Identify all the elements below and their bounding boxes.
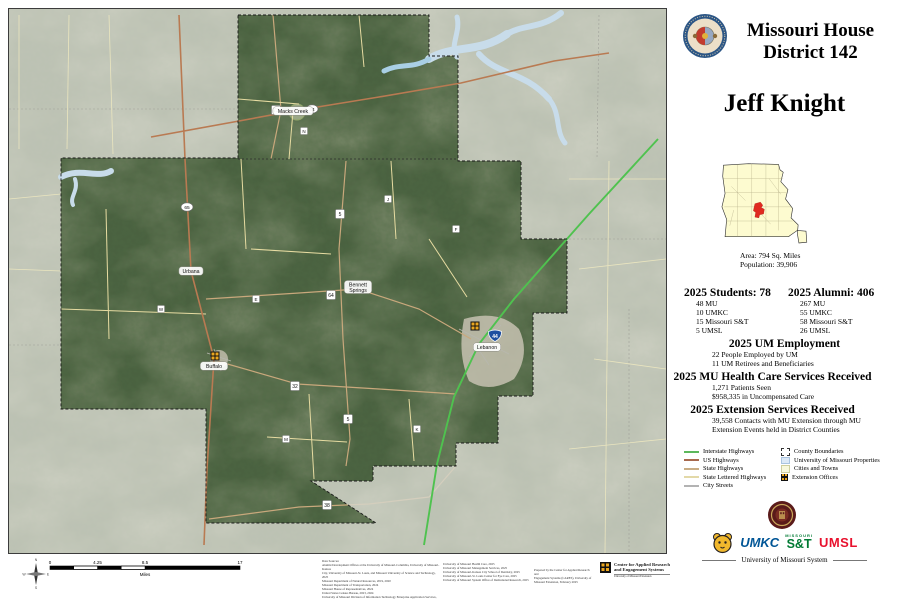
legend-label: Interstate Highways <box>703 448 754 455</box>
svg-text:N: N <box>302 129 305 134</box>
svg-text:Urbana: Urbana <box>182 269 199 275</box>
page-title-line1: Missouri House <box>728 20 893 42</box>
um-system-label-row: University of Missouri System <box>672 556 897 564</box>
lettered-shield: W <box>158 306 165 313</box>
employment-item: 11 UM Retirees and Beneficiaries <box>712 360 897 368</box>
missouri-st-monogram: S&T <box>785 538 813 551</box>
state-shield: 64 <box>327 291 336 300</box>
cares-logo-icon <box>600 562 611 573</box>
lettered-shield: E <box>253 296 260 303</box>
um-properties-swatch <box>781 457 790 465</box>
university-logos-row: UMKC MISSOURI S&T UMSL <box>672 531 897 554</box>
students-stats: 2025 Students: 78 48 MU 10 UMKC 15 Misso… <box>684 287 771 337</box>
representative-name: Jeff Knight <box>672 90 897 118</box>
healthcare-stats: 2025 MU Health Care Services Received 1,… <box>660 371 885 402</box>
scale-bar: 0 4.25 8.5 17 Miles <box>48 558 248 582</box>
cares-block: Center for Applied Research and Engageme… <box>600 562 670 578</box>
alumni-items: 267 MU 55 UMKC 58 Missouri S&T 26 UMSL <box>800 300 874 335</box>
legend-label: University of Missouri Properties <box>794 457 880 464</box>
extension-stats: 2025 Extension Services Received 39,558 … <box>660 404 885 435</box>
extension-office-icon <box>211 352 220 361</box>
svg-text:E: E <box>254 297 257 302</box>
umkc-logo: UMKC <box>740 535 779 550</box>
city-label: BennettSprings <box>344 281 371 294</box>
svg-text:64: 64 <box>328 293 334 299</box>
interstate-line-swatch <box>684 451 699 453</box>
cities-towns-swatch <box>781 465 790 473</box>
healthcare-item: $958,335 in Uncompensated Care <box>712 393 885 401</box>
students-heading: 2025 Students: 78 <box>684 287 771 299</box>
city-label: Macks Creek <box>273 107 313 116</box>
credit-line: Alumni Development Offices at the Univer… <box>322 563 440 571</box>
alumni-stats: 2025 Alumni: 406 267 MU 55 UMKC 58 Misso… <box>788 287 874 337</box>
svg-text:4.25: 4.25 <box>93 560 102 565</box>
inset-caption: Area: 794 Sq. Miles Population: 39,906 <box>740 251 800 270</box>
page-title: Missouri House District 142 <box>728 20 893 65</box>
um-system-label: University of Missouri System <box>741 556 827 564</box>
svg-text:17: 17 <box>237 560 243 565</box>
svg-text:Buffalo: Buffalo <box>206 364 222 370</box>
alumni-item: 267 MU <box>800 300 874 308</box>
credit-line: Missouri Extension, February 2025 <box>534 580 594 584</box>
cares-line: and Engagement Systems <box>614 567 670 572</box>
svg-text:Miles: Miles <box>140 572 151 577</box>
extension-heading: 2025 Extension Services Received <box>660 404 885 416</box>
legend-label: US Highways <box>703 457 739 464</box>
healthcare-heading: 2025 MU Health Care Services Received <box>660 371 885 383</box>
svg-text:0: 0 <box>49 560 52 565</box>
page-title-line2: District 142 <box>728 42 893 64</box>
svg-text:8.5: 8.5 <box>142 560 149 565</box>
extension-office-swatch <box>781 474 788 481</box>
employment-item: 22 People Employed by UM <box>712 351 897 359</box>
satellite-map-canvas: 4454657356432385JEKMFNW Macks CreekUrban… <box>9 9 666 553</box>
alumni-item: 58 Missouri S&T <box>800 318 874 326</box>
decorative-rule <box>833 560 867 561</box>
credit-line: Prepared by the Center for Applied Resea… <box>534 568 594 576</box>
students-item: 48 MU <box>696 300 771 308</box>
svg-text:38: 38 <box>324 503 330 509</box>
svg-text:32: 32 <box>292 384 298 390</box>
data-sources-credits: University of Missouri Health Care, 2025… <box>443 562 531 582</box>
city-street-line-swatch <box>684 485 699 487</box>
county-boundary-swatch <box>781 448 790 456</box>
state-highway-line-swatch <box>684 468 699 470</box>
extension-item: Extension Events held in District Counti… <box>712 426 885 434</box>
lettered-shield: J <box>385 196 392 203</box>
extension-items: 39,558 Contacts with MU Extension throug… <box>712 417 885 434</box>
north-arrow-icon: N S W E <box>22 556 50 590</box>
legend-label: State Lettered Highways <box>703 474 766 481</box>
missouri-st-logo: MISSOURI S&T <box>785 534 813 551</box>
district-report-page: 4454657356432385JEKMFNW Macks CreekUrban… <box>0 0 900 600</box>
city-label: Lebanon <box>473 343 500 352</box>
missouri-outline <box>722 164 807 243</box>
legend-label: State Highways <box>703 465 743 472</box>
cares-subline: University of Missouri Extension <box>614 574 670 579</box>
city-label: Urbana <box>179 267 203 276</box>
legend-label: County Boundaries <box>794 448 844 455</box>
legend-lines-column: Interstate Highways US Highways State Hi… <box>684 448 784 491</box>
population-label: Population: 39,906 <box>740 260 800 269</box>
svg-text:W: W <box>22 573 26 577</box>
legend-label: City Streets <box>703 482 733 489</box>
svg-text:44: 44 <box>492 334 498 340</box>
missouri-inset-map <box>714 155 832 254</box>
credit-line: City, University of Missouri-St. Louis, … <box>322 571 440 579</box>
employment-stats: 2025 UM Employment 22 People Employed by… <box>672 338 897 369</box>
students-item: 15 Missouri S&T <box>696 318 771 326</box>
mu-tiger-logo <box>711 531 734 554</box>
svg-text:S: S <box>35 586 38 590</box>
students-item: 10 UMKC <box>696 309 771 317</box>
cares-text: Center for Applied Research and Engageme… <box>614 562 670 578</box>
svg-text:J: J <box>387 197 389 202</box>
data-sources-credits: Data Sources:Alumni Development Offices … <box>322 559 440 600</box>
lettered-shield: N <box>301 128 308 135</box>
svg-text:5: 5 <box>339 212 342 218</box>
svg-text:M: M <box>284 437 288 442</box>
legend-areas-column: County Boundaries University of Missouri… <box>781 448 900 482</box>
students-items: 48 MU 10 UMKC 15 Missouri S&T 5 UMSL <box>696 300 771 335</box>
state-shield: 32 <box>291 382 300 391</box>
alumni-heading: 2025 Alumni: 406 <box>788 287 874 299</box>
svg-text:N: N <box>35 558 38 562</box>
um-system-seal-icon <box>767 500 797 530</box>
extension-item: 39,558 Contacts with MU Extension throug… <box>712 417 885 425</box>
area-label: Area: 794 Sq. Miles <box>740 251 800 260</box>
state-shield: 5 <box>344 415 353 424</box>
employment-heading: 2025 UM Employment <box>672 338 897 350</box>
credit-line: University of Missouri Division of Infor… <box>322 595 440 600</box>
lettered-shield: F <box>453 226 460 233</box>
lettered-shield: K <box>414 426 421 433</box>
state-lettered-line-swatch <box>684 476 699 478</box>
alumni-item: 26 UMSL <box>800 327 874 335</box>
prepared-by-credits: Prepared by the Center for Applied Resea… <box>534 568 594 584</box>
legend-label: Extension Offices <box>792 474 838 481</box>
employment-items: 22 People Employed by UM 11 UM Retirees … <box>712 351 897 368</box>
extension-office-icon <box>471 322 480 331</box>
district-map: 4454657356432385JEKMFNW Macks CreekUrban… <box>8 8 667 554</box>
state-shield: 38 <box>323 501 332 510</box>
legend-label: Cities and Towns <box>794 465 838 472</box>
svg-text:Macks Creek: Macks Creek <box>278 109 309 115</box>
us-shield: 65 <box>181 203 193 211</box>
svg-text:5: 5 <box>347 417 350 423</box>
svg-text:65: 65 <box>184 205 190 211</box>
umsl-logo: UMSL <box>819 535 858 550</box>
svg-text:Springs: Springs <box>349 288 367 294</box>
alumni-item: 55 UMKC <box>800 309 874 317</box>
us-highway-line-swatch <box>684 459 699 461</box>
missouri-state-seal-icon <box>682 13 728 59</box>
credit-line: University of Missouri System Office of … <box>443 578 531 582</box>
svg-text:F: F <box>455 227 458 232</box>
healthcare-items: 1,271 Patients Seen $958,335 in Uncompen… <box>712 384 885 401</box>
svg-text:K: K <box>415 427 418 432</box>
svg-text:Lebanon: Lebanon <box>477 345 497 351</box>
city-label: Buffalo <box>200 362 227 371</box>
decorative-rule <box>702 560 736 561</box>
healthcare-item: 1,271 Patients Seen <box>712 384 885 392</box>
lettered-shield: M <box>283 436 290 443</box>
students-item: 5 UMSL <box>696 327 771 335</box>
state-shield: 5 <box>336 210 345 219</box>
